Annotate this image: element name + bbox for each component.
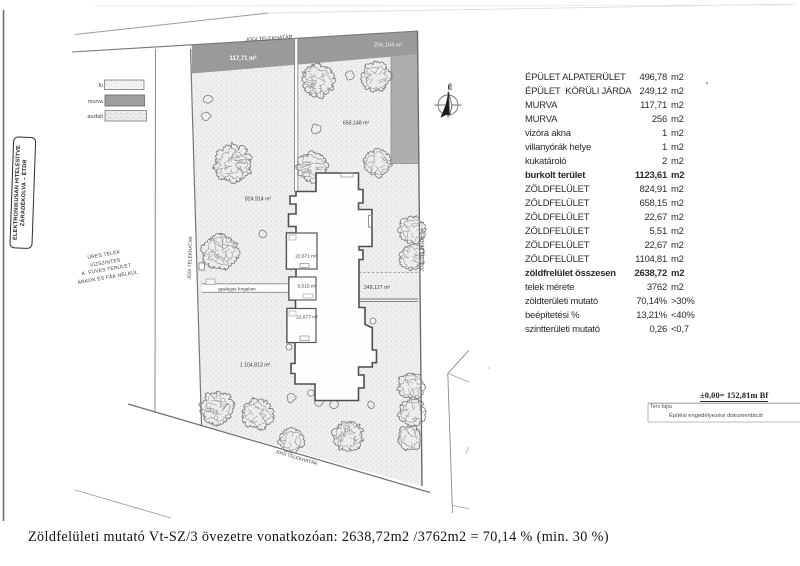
svg-text:256,104 m²: 256,104 m² <box>374 43 402 49</box>
svg-text:É: É <box>448 83 453 92</box>
svg-text:824,914 m²: 824,914 m² <box>245 197 272 203</box>
svg-text:22,671 m²: 22,671 m² <box>295 254 317 260</box>
svg-text:murva: murva <box>88 99 103 105</box>
svg-text:aszfalt: aszfalt <box>87 114 103 120</box>
svg-text:658,148 m²: 658,148 m² <box>343 121 370 127</box>
svg-text:249,127 m²: 249,127 m² <box>364 285 391 291</box>
svg-text:5,515 m²: 5,515 m² <box>298 284 317 290</box>
svg-text:JOGI TELEKHATÁR: JOGI TELEKHATÁR <box>186 236 195 280</box>
svg-text:22,677 m²: 22,677 m² <box>296 315 318 321</box>
svg-text:gyalogos forgalom: gyalogos forgalom <box>218 287 256 292</box>
svg-text:117,71 m²: 117,71 m² <box>229 55 256 62</box>
svg-text:fü: fü <box>99 83 104 89</box>
svg-text:1 104,813 m²: 1 104,813 m² <box>240 363 271 369</box>
